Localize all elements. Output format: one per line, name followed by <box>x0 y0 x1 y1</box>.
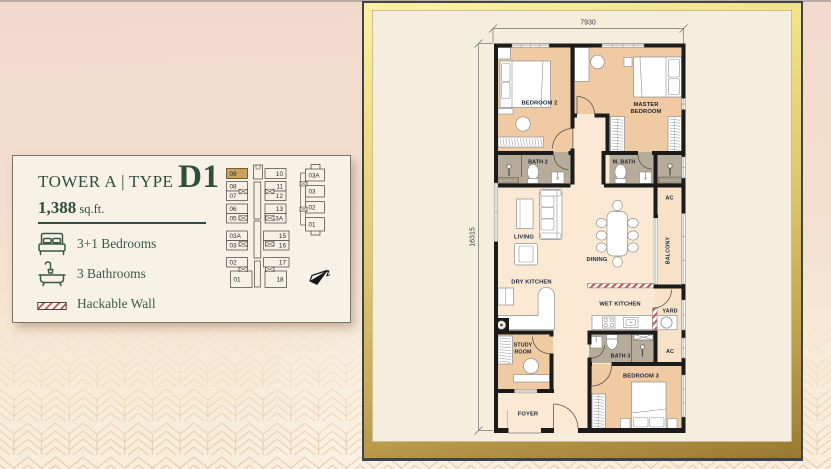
svg-text:YARD: YARD <box>662 309 677 315</box>
svg-text:7930: 7930 <box>580 20 596 27</box>
svg-text:DRY KITCHEN: DRY KITCHEN <box>511 280 551 286</box>
svg-text:ROOM: ROOM <box>514 350 532 356</box>
svg-text:FOYER: FOYER <box>518 412 539 418</box>
svg-text:BEDROOM: BEDROOM <box>631 109 662 115</box>
svg-text:16315: 16315 <box>470 227 477 247</box>
svg-text:BATH 3: BATH 3 <box>611 354 631 360</box>
svg-text:BEDROOM 2: BEDROOM 2 <box>521 101 557 107</box>
svg-text:LIVING: LIVING <box>514 235 534 241</box>
svg-text:BALCONY: BALCONY <box>666 237 672 265</box>
svg-text:M. BATH: M. BATH <box>613 160 636 166</box>
svg-text:AC: AC <box>666 349 674 355</box>
svg-text:DINING: DINING <box>587 257 608 263</box>
svg-text:STUDY: STUDY <box>514 343 533 349</box>
svg-text:BATH 2: BATH 2 <box>528 160 548 166</box>
svg-text:AC: AC <box>666 196 674 202</box>
svg-text:WET KITCHEN: WET KITCHEN <box>599 302 640 308</box>
svg-text:MASTER: MASTER <box>633 102 659 108</box>
svg-text:BEDROOM 3: BEDROOM 3 <box>623 374 660 380</box>
